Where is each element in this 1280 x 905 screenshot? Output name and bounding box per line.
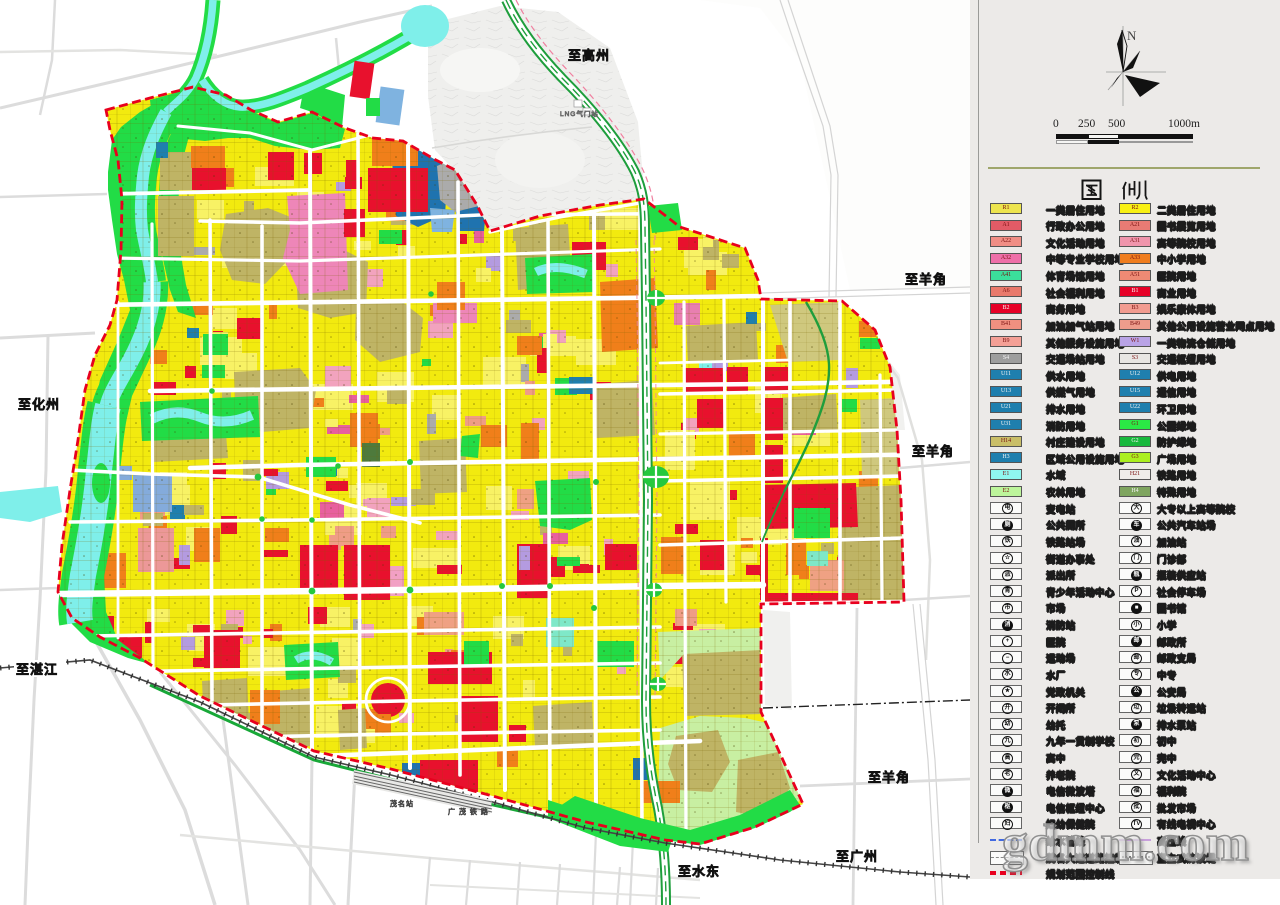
svg-text:N: N — [1127, 28, 1137, 43]
svg-text:至化州: 至化州 — [18, 397, 60, 412]
svg-text:至水东: 至水东 — [678, 864, 720, 879]
svg-text:至羊角: 至羊角 — [905, 272, 947, 287]
svg-text:至羊角: 至羊角 — [912, 444, 954, 459]
svg-text:至广州: 至广州 — [836, 849, 878, 864]
svg-text:至羊角: 至羊角 — [868, 770, 910, 785]
svg-text:至湛江: 至湛江 — [16, 662, 58, 677]
svg-text:茂名站: 茂名站 — [390, 799, 414, 808]
svg-text:广 茂 铁 路: 广 茂 铁 路 — [448, 807, 489, 816]
svg-text:至高州: 至高州 — [568, 48, 610, 63]
svg-text:LNG气门站: LNG气门站 — [560, 109, 599, 118]
